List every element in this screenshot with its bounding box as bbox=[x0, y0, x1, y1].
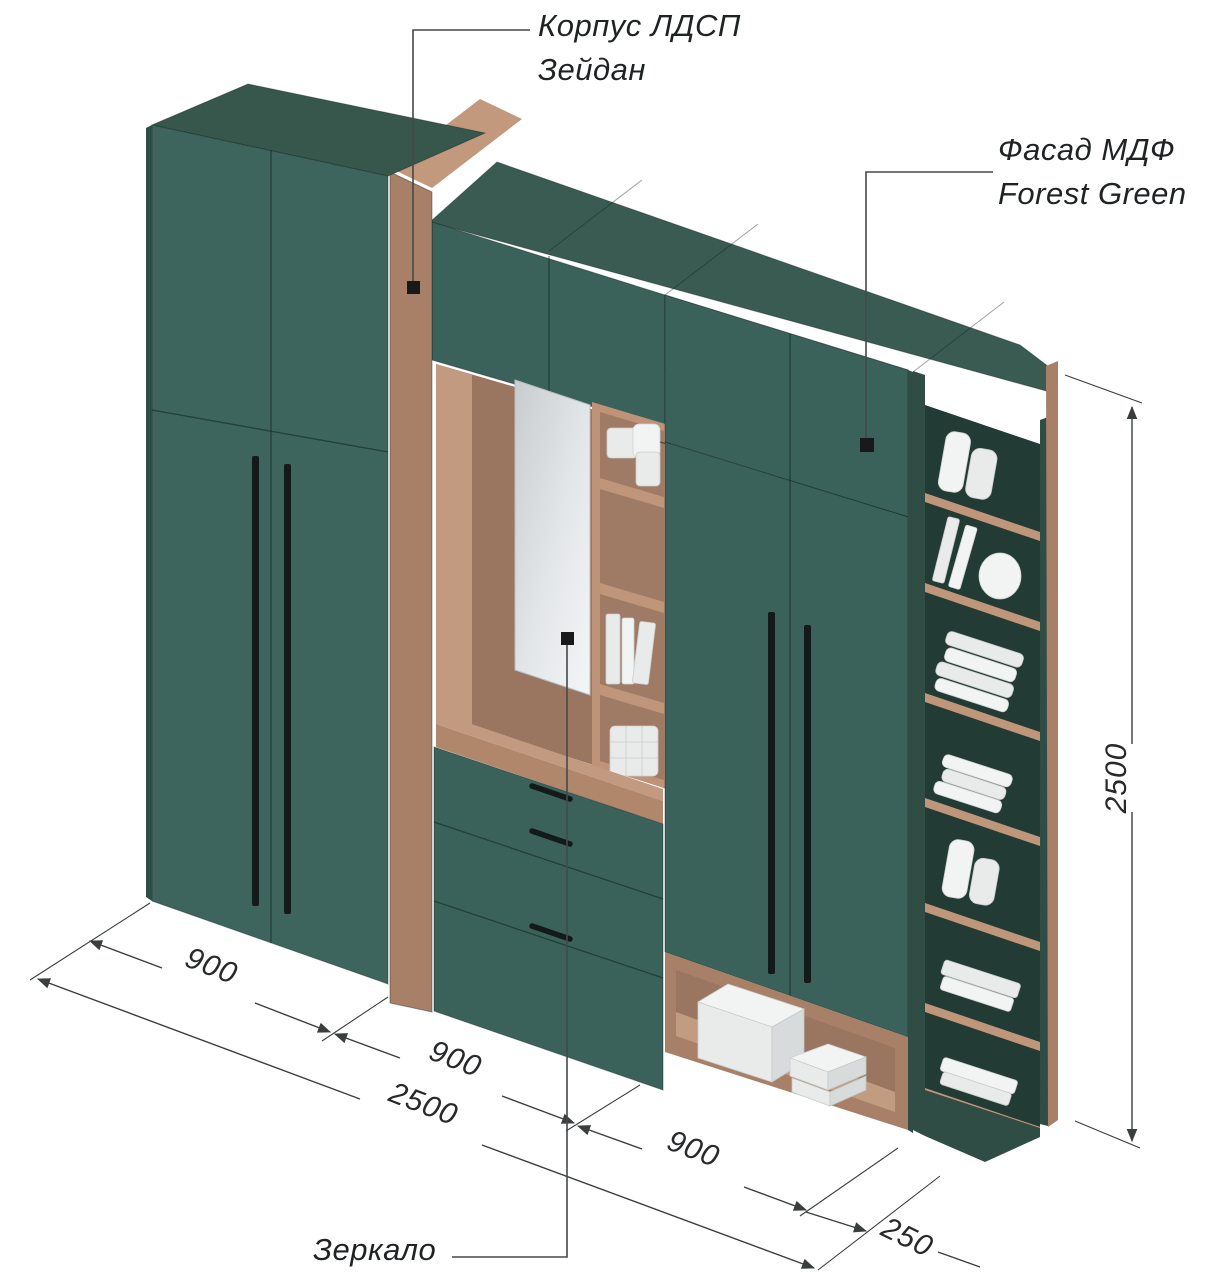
leader-marker-mirror bbox=[561, 632, 574, 645]
label-mirror-text: Зеркало bbox=[313, 1232, 436, 1267]
dim-middle-width: 900 bbox=[425, 1034, 486, 1084]
decor-books bbox=[606, 614, 656, 685]
label-mirror: Зеркало bbox=[313, 1228, 436, 1272]
dim-right-width: 900 bbox=[663, 1124, 724, 1174]
dim-left-width: 900 bbox=[181, 941, 242, 991]
leader-marker-korpus bbox=[407, 281, 420, 294]
end-shelf-unit bbox=[913, 361, 1058, 1162]
right-wardrobe bbox=[660, 295, 913, 1133]
right-door-handle-1 bbox=[768, 612, 775, 974]
label-fasad: Фасад МДФ Forest Green bbox=[998, 128, 1187, 216]
middle-shelf-column bbox=[592, 402, 672, 790]
label-korpus-line1: Корпус ЛДСП bbox=[538, 4, 741, 48]
end-unit-back-edge bbox=[1046, 361, 1058, 1127]
label-fasad-line2: Forest Green bbox=[998, 172, 1187, 216]
left-door-handle-2 bbox=[284, 464, 291, 914]
furniture-diagram: 900 900 900 2500 250 2500 Корпус ЛДСП Зе… bbox=[0, 0, 1230, 1280]
right-door-handle-2 bbox=[804, 625, 811, 983]
leader-marker-fasad bbox=[860, 438, 874, 452]
mirror bbox=[515, 380, 590, 695]
right-tall-doors bbox=[665, 442, 908, 1037]
decor-woven-box bbox=[610, 726, 658, 776]
left-doors bbox=[152, 125, 388, 984]
dim-total-width: 2500 bbox=[384, 1076, 463, 1133]
label-korpus: Корпус ЛДСП Зейдан bbox=[538, 4, 741, 92]
dim-total-height: 2500 bbox=[1100, 743, 1133, 815]
middle-section bbox=[432, 222, 672, 1090]
label-fasad-line1: Фасад МДФ bbox=[998, 128, 1187, 172]
left-door-handle-1 bbox=[252, 456, 259, 906]
label-korpus-line2: Зейдан bbox=[538, 48, 741, 92]
